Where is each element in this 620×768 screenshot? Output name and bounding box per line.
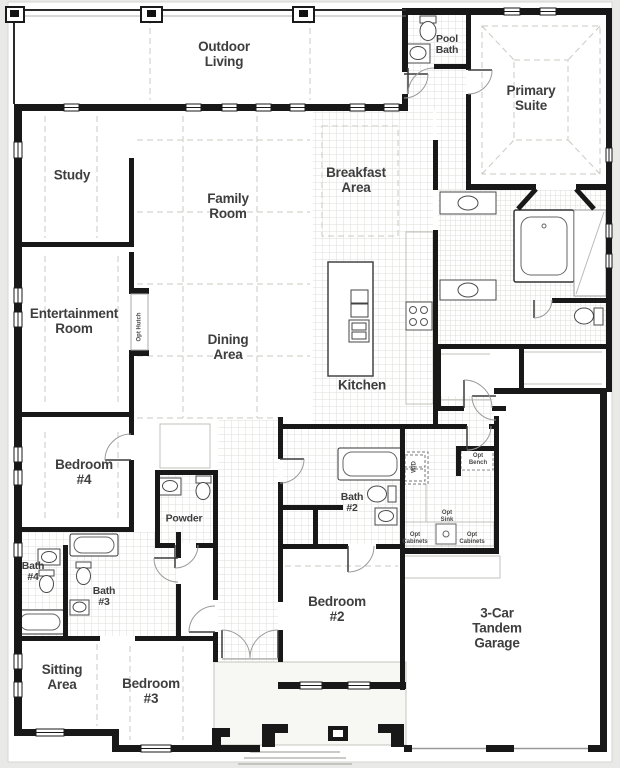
pool-bath-toilet-icon <box>420 16 436 41</box>
bath2-toilet-icon <box>368 486 397 502</box>
window <box>36 729 64 736</box>
window <box>256 104 271 111</box>
bath4-toilet-icon <box>39 570 54 593</box>
window <box>64 104 79 111</box>
pool-bath-sink-icon <box>406 44 430 63</box>
window <box>300 682 322 689</box>
bath3-tub-icon <box>70 534 118 556</box>
primary-shower-icon <box>574 210 606 296</box>
bath4-tub-icon <box>16 610 64 634</box>
window <box>14 543 22 557</box>
window <box>14 654 22 669</box>
bath4-sink-icon <box>38 549 60 565</box>
window <box>14 312 22 327</box>
primary-vanity-2 <box>440 280 496 300</box>
window <box>222 104 237 111</box>
primary-bathtub-icon <box>514 210 574 282</box>
window <box>14 470 22 485</box>
window <box>540 8 556 15</box>
window <box>504 8 520 15</box>
garage-door-opening <box>412 745 486 752</box>
powder-toilet-icon <box>196 476 211 500</box>
primary-toilet-icon <box>575 308 604 325</box>
bath3-toilet-icon <box>76 562 91 585</box>
window <box>14 682 22 697</box>
washer-dryer-icon <box>402 452 428 484</box>
range-icon <box>406 302 432 330</box>
floor-plan-drawing <box>0 0 620 768</box>
window <box>290 104 305 111</box>
window <box>186 104 201 111</box>
bath3-sink-icon <box>70 600 89 615</box>
floor-plan: Outdoor LivingPool BathPrimary SuiteStud… <box>0 0 620 768</box>
window <box>141 745 171 752</box>
opt-bench-icon <box>461 450 493 470</box>
opt-sink-icon <box>436 524 456 544</box>
window <box>350 104 365 111</box>
window <box>14 142 22 158</box>
window <box>14 288 22 303</box>
opt-hutch-niche <box>131 294 148 350</box>
garage-door-opening <box>514 745 588 752</box>
window <box>606 224 612 238</box>
window <box>384 104 399 111</box>
window <box>14 447 22 462</box>
kitchen-island <box>328 262 373 376</box>
powder-sink-icon <box>159 478 181 495</box>
bath2-tub-icon <box>338 448 402 480</box>
window <box>606 148 612 162</box>
window <box>348 682 370 689</box>
window <box>606 254 612 268</box>
bath2-sink-icon <box>375 508 397 525</box>
primary-vanity-1 <box>440 192 496 214</box>
